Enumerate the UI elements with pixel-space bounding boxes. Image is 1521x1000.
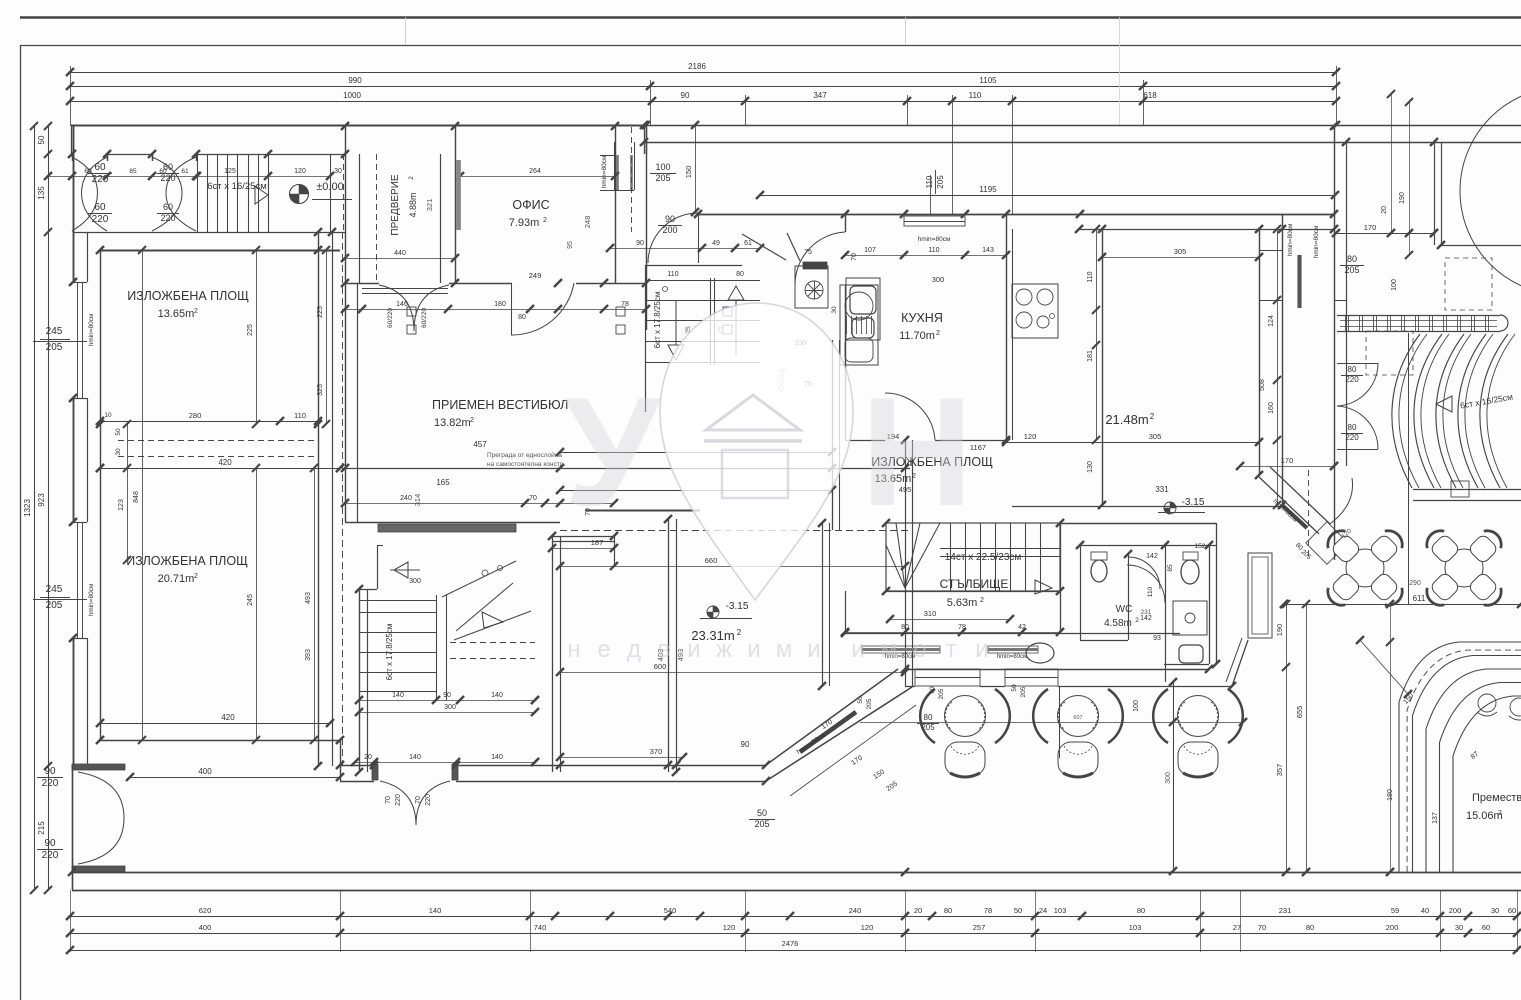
svg-text:60/220: 60/220	[387, 308, 394, 328]
svg-text:50: 50	[1011, 684, 1018, 692]
svg-text:hmin=80см: hmin=80см	[1287, 223, 1294, 256]
svg-text:220: 220	[425, 794, 432, 806]
svg-text:2: 2	[1498, 810, 1502, 817]
svg-text:ИЗЛОЖБЕНА ПЛОЩ: ИЗЛОЖБЕНА ПЛОЩ	[126, 554, 248, 568]
svg-text:1105: 1105	[979, 76, 997, 85]
svg-text:61: 61	[181, 168, 189, 175]
svg-text:80: 80	[944, 906, 952, 915]
svg-text:60: 60	[94, 162, 106, 173]
svg-text:400: 400	[199, 923, 212, 932]
svg-text:310: 310	[924, 609, 937, 618]
svg-text:70: 70	[385, 796, 392, 804]
svg-text:142: 142	[1140, 615, 1152, 622]
svg-text:90: 90	[665, 214, 675, 224]
svg-text:245: 245	[247, 594, 254, 606]
svg-text:Преграда от еднослойна: Преграда от еднослойна	[487, 451, 562, 459]
svg-text:290: 290	[1409, 580, 1421, 587]
svg-text:21.48m: 21.48m	[1105, 412, 1148, 427]
svg-text:hmin=80см: hmin=80см	[601, 155, 608, 188]
svg-text:90: 90	[44, 766, 56, 777]
svg-text:70: 70	[851, 253, 858, 261]
svg-text:205: 205	[655, 173, 670, 183]
svg-text:205: 205	[938, 688, 945, 699]
svg-text:245: 245	[46, 326, 63, 337]
svg-text:13.82m: 13.82m	[434, 417, 471, 429]
svg-text:220: 220	[1345, 433, 1359, 442]
svg-text:280: 280	[189, 411, 202, 420]
svg-text:80: 80	[1348, 365, 1357, 374]
svg-text:300: 300	[409, 578, 421, 585]
svg-text:80: 80	[1306, 923, 1314, 932]
svg-text:hmin=80см: hmin=80см	[997, 654, 1027, 660]
svg-text:140: 140	[491, 754, 503, 761]
svg-text:30: 30	[1491, 906, 1499, 915]
svg-text:14ст x 22.5/23см: 14ст x 22.5/23см	[945, 552, 1022, 563]
svg-text:110: 110	[667, 271, 678, 278]
svg-text:257: 257	[973, 923, 986, 932]
svg-text:50: 50	[37, 135, 46, 144]
svg-text:493: 493	[305, 592, 312, 604]
svg-text:220: 220	[1345, 375, 1359, 384]
svg-text:205: 205	[936, 175, 945, 189]
svg-text:100: 100	[1133, 700, 1140, 712]
svg-text:2: 2	[936, 330, 940, 337]
svg-text:130: 130	[1087, 461, 1094, 473]
svg-text:59: 59	[1391, 906, 1399, 915]
svg-text:60: 60	[94, 202, 106, 213]
svg-text:90: 90	[636, 240, 644, 247]
svg-text:215: 215	[37, 821, 46, 835]
svg-text:508: 508	[1259, 379, 1266, 391]
svg-text:90: 90	[681, 91, 690, 100]
svg-text:и: и	[851, 636, 864, 663]
svg-text:93: 93	[1153, 635, 1161, 642]
svg-text:24: 24	[1039, 906, 1047, 915]
svg-text:110: 110	[928, 247, 939, 254]
svg-text:70: 70	[529, 495, 537, 502]
svg-text:60/220: 60/220	[421, 308, 428, 328]
svg-text:190: 190	[1275, 624, 1284, 637]
svg-text:80: 80	[1348, 423, 1357, 432]
svg-text:hmin=80см: hmin=80см	[918, 236, 951, 243]
svg-text:и: и	[747, 636, 760, 663]
svg-text:20: 20	[1381, 206, 1388, 214]
svg-text:-3.15: -3.15	[1182, 497, 1205, 508]
svg-text:137: 137	[1432, 812, 1439, 824]
svg-text:220: 220	[160, 213, 175, 223]
svg-text:300: 300	[932, 275, 945, 284]
svg-text:300: 300	[444, 704, 456, 711]
svg-text:80: 80	[924, 713, 933, 722]
svg-text:245: 245	[46, 584, 63, 595]
svg-text:357: 357	[1275, 764, 1284, 777]
svg-text:165: 165	[436, 478, 450, 487]
svg-text:4.58m: 4.58m	[1104, 618, 1132, 629]
svg-text:420: 420	[221, 713, 235, 722]
svg-text:ж: ж	[716, 636, 732, 663]
svg-text:95: 95	[567, 241, 574, 249]
svg-text:110: 110	[925, 175, 934, 188]
svg-text:1323: 1323	[23, 499, 32, 517]
svg-text:2: 2	[1150, 412, 1155, 421]
svg-text:231: 231	[1279, 906, 1292, 915]
svg-text:20.71m: 20.71m	[158, 573, 195, 585]
svg-text:205: 205	[1344, 265, 1359, 275]
svg-text:493: 493	[676, 649, 685, 662]
svg-text:140: 140	[491, 692, 503, 699]
svg-text:100: 100	[1391, 279, 1398, 291]
svg-text:220: 220	[395, 794, 402, 806]
svg-text:60: 60	[163, 202, 173, 212]
svg-text:110: 110	[969, 91, 982, 100]
svg-text:60: 60	[159, 168, 167, 175]
svg-text:70: 70	[1258, 923, 1266, 932]
svg-text:м: м	[776, 636, 793, 663]
svg-text:60: 60	[84, 168, 92, 175]
svg-text:ПРЕДВЕРИЕ: ПРЕДВЕРИЕ	[390, 174, 401, 235]
svg-text:440: 440	[394, 250, 406, 257]
svg-text:181: 181	[1087, 350, 1094, 362]
svg-text:240: 240	[849, 906, 862, 915]
svg-text:13.65m: 13.65m	[158, 308, 195, 320]
svg-text:618: 618	[1143, 91, 1157, 100]
svg-text:30: 30	[831, 306, 838, 314]
svg-text:50: 50	[857, 696, 864, 704]
svg-text:110: 110	[1147, 586, 1154, 597]
svg-text:205: 205	[866, 698, 873, 709]
svg-text:д: д	[627, 636, 641, 663]
svg-text:347: 347	[813, 91, 827, 100]
svg-text:2: 2	[737, 628, 742, 637]
svg-text:225: 225	[247, 324, 254, 336]
svg-text:120: 120	[294, 168, 306, 175]
svg-text:205: 205	[1020, 686, 1027, 697]
svg-text:620: 620	[199, 906, 212, 915]
svg-text:СТЪЛБИЩЕ: СТЪЛБИЩЕ	[940, 577, 1009, 591]
svg-text:740: 740	[534, 923, 547, 932]
svg-text:540: 540	[664, 906, 677, 915]
svg-text:и: и	[687, 636, 700, 663]
svg-text:220: 220	[42, 850, 59, 861]
svg-text:160: 160	[1268, 402, 1275, 414]
svg-text:607: 607	[1073, 715, 1082, 721]
svg-text:70: 70	[415, 796, 422, 804]
svg-text:205: 205	[46, 600, 63, 611]
svg-text:50: 50	[757, 808, 767, 818]
svg-text:990: 990	[348, 76, 362, 85]
svg-text:140: 140	[409, 754, 421, 761]
svg-text:1000: 1000	[343, 91, 361, 100]
svg-text:120: 120	[1024, 432, 1037, 441]
svg-text:200: 200	[1449, 906, 1462, 915]
svg-text:107: 107	[864, 247, 876, 254]
svg-text:660: 660	[705, 556, 718, 565]
svg-text:hmin=80см: hmin=80см	[88, 313, 95, 346]
svg-text:50: 50	[1014, 906, 1022, 915]
svg-text:923: 923	[37, 493, 46, 507]
svg-text:611: 611	[1413, 594, 1426, 603]
svg-text:100: 100	[655, 162, 670, 172]
svg-text:110: 110	[1087, 271, 1094, 282]
svg-text:7.93m: 7.93m	[509, 217, 540, 229]
svg-text:152: 152	[1195, 543, 1206, 550]
svg-text:140: 140	[392, 692, 404, 699]
svg-text:4.88m: 4.88m	[408, 192, 418, 217]
svg-text:42: 42	[1018, 624, 1026, 631]
svg-text:140: 140	[429, 906, 442, 915]
svg-text:6ст x 17.8/25см: 6ст x 17.8/25см	[385, 624, 394, 681]
svg-text:и: и	[975, 636, 988, 663]
svg-text:ПРИЕМЕН ВЕСТИБЮЛ: ПРИЕМЕН ВЕСТИБЮЛ	[432, 398, 568, 412]
svg-text:-3.15: -3.15	[726, 601, 749, 612]
svg-text:205: 205	[754, 819, 769, 829]
svg-text:м: м	[881, 636, 898, 663]
svg-text:123: 123	[118, 499, 125, 511]
svg-text:hmin=80см: hmin=80см	[1313, 225, 1320, 258]
svg-text:190: 190	[1399, 192, 1406, 204]
svg-text:о: о	[913, 636, 926, 663]
svg-text:180: 180	[494, 301, 506, 308]
svg-text:90: 90	[44, 838, 56, 849]
svg-text:80: 80	[518, 314, 526, 321]
svg-text:103: 103	[1129, 923, 1142, 932]
svg-text:321: 321	[425, 199, 434, 212]
svg-text:2: 2	[980, 597, 984, 604]
svg-text:120: 120	[861, 923, 874, 932]
svg-text:848: 848	[133, 491, 140, 503]
svg-text:2476: 2476	[782, 939, 799, 948]
svg-text:142: 142	[1146, 553, 1158, 560]
svg-text:135: 135	[37, 186, 46, 200]
svg-text:103: 103	[1054, 906, 1067, 915]
svg-text:187: 187	[591, 538, 604, 547]
svg-text:150: 150	[684, 166, 693, 179]
svg-text:331: 331	[1155, 485, 1169, 494]
svg-text:78: 78	[958, 624, 966, 631]
svg-text:90: 90	[443, 692, 451, 699]
svg-text:457: 457	[473, 440, 487, 449]
svg-text:WC: WC	[1116, 604, 1133, 615]
svg-text:125: 125	[224, 168, 236, 175]
svg-text:6ст x 17.8/25см: 6ст x 17.8/25см	[653, 292, 662, 349]
svg-text:2: 2	[194, 573, 198, 580]
svg-text:300: 300	[1165, 772, 1172, 784]
svg-text:400: 400	[198, 767, 212, 776]
svg-text:143: 143	[982, 247, 994, 254]
svg-text:655: 655	[1295, 706, 1304, 719]
svg-text:220: 220	[42, 778, 59, 789]
svg-text:170: 170	[1364, 223, 1377, 232]
svg-text:6ст x 16/25см: 6ст x 16/25см	[207, 181, 266, 192]
svg-text:±0.00: ±0.00	[316, 181, 343, 193]
svg-text:У: У	[564, 365, 662, 538]
svg-text:325: 325	[317, 384, 324, 396]
svg-text:200: 200	[1386, 923, 1399, 932]
svg-text:225: 225	[317, 306, 324, 318]
svg-text:60: 60	[1482, 923, 1490, 932]
svg-text:249: 249	[529, 271, 542, 280]
svg-text:49: 49	[712, 240, 720, 247]
svg-text:Премества: Премества	[1472, 792, 1521, 804]
svg-text:305: 305	[1149, 432, 1162, 441]
svg-text:370: 370	[650, 747, 663, 756]
svg-text:80: 80	[736, 271, 744, 278]
svg-text:2186: 2186	[688, 62, 706, 71]
svg-text:в: в	[658, 636, 671, 663]
svg-text:hmin=80см: hmin=80см	[88, 583, 95, 616]
svg-text:248: 248	[583, 216, 592, 229]
svg-text:61: 61	[744, 240, 752, 247]
svg-text:е: е	[597, 636, 610, 663]
svg-text:10: 10	[104, 412, 112, 419]
svg-text:ОФИС: ОФИС	[512, 198, 549, 212]
svg-text:2: 2	[194, 308, 198, 315]
svg-text:Н: Н	[861, 365, 973, 538]
svg-text:146: 146	[396, 301, 408, 308]
svg-text:80: 80	[1137, 906, 1145, 915]
svg-text:КУХНЯ: КУХНЯ	[901, 311, 943, 325]
svg-text:420: 420	[218, 458, 232, 467]
svg-text:50: 50	[115, 428, 122, 436]
svg-text:240: 240	[400, 495, 412, 502]
svg-text:30: 30	[115, 448, 122, 456]
svg-text:20: 20	[914, 906, 922, 915]
svg-text:11.70m: 11.70m	[899, 330, 935, 342]
svg-text:120: 120	[723, 923, 736, 932]
svg-text:600: 600	[654, 662, 667, 671]
svg-text:и: и	[807, 636, 820, 663]
svg-text:85: 85	[129, 168, 137, 175]
svg-text:124: 124	[1268, 315, 1275, 327]
svg-text:27: 27	[1233, 923, 1241, 932]
svg-text:78: 78	[984, 906, 992, 915]
svg-text:2: 2	[470, 417, 474, 424]
svg-text:н: н	[567, 636, 580, 663]
svg-text:314: 314	[413, 494, 422, 507]
svg-text:393: 393	[305, 649, 312, 661]
svg-text:ИЗЛОЖБЕНА ПЛОЩ: ИЗЛОЖБЕНА ПЛОЩ	[127, 289, 249, 303]
svg-text:110: 110	[294, 411, 306, 420]
svg-text:305: 305	[1174, 247, 1187, 256]
svg-text:5.63m: 5.63m	[947, 597, 978, 609]
svg-text:200: 200	[662, 225, 677, 235]
svg-text:2: 2	[1135, 617, 1139, 624]
svg-text:80: 80	[1347, 254, 1357, 264]
svg-text:60: 60	[1508, 906, 1516, 915]
svg-text:85: 85	[1167, 564, 1174, 572]
svg-text:30: 30	[1455, 923, 1463, 932]
svg-text:170: 170	[1281, 456, 1294, 465]
svg-text:1195: 1195	[979, 185, 997, 194]
svg-text:220: 220	[92, 214, 109, 225]
svg-text:205: 205	[46, 342, 63, 353]
svg-text:264: 264	[529, 168, 541, 175]
svg-text:на самостоятелна констр.: на самостоятелна констр.	[487, 461, 565, 468]
svg-text:80: 80	[901, 624, 909, 631]
svg-text:40: 40	[1421, 906, 1429, 915]
svg-text:2: 2	[543, 217, 547, 224]
svg-text:т: т	[946, 636, 957, 663]
svg-text:90: 90	[741, 740, 750, 749]
svg-text:20: 20	[364, 754, 372, 761]
svg-text:30: 30	[334, 168, 342, 175]
